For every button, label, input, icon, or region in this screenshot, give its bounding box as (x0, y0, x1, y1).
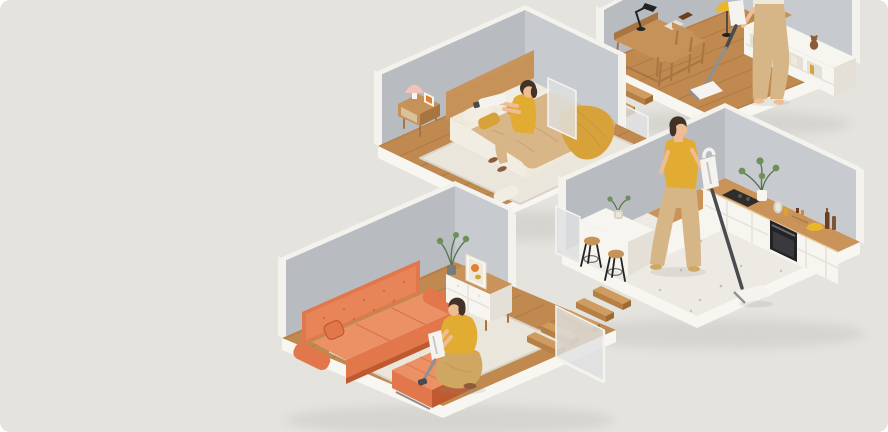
ceramic-vase (774, 202, 781, 213)
bedroom-woman-hair-side (531, 86, 537, 98)
vacuum-body (728, 0, 746, 26)
kitchen-wall-end-cap (856, 166, 864, 244)
frosted-glass-panel (556, 206, 580, 264)
living-woman-shoe (464, 383, 477, 389)
living-wall-end-cap (508, 210, 516, 290)
kitchen-woman-shoe (650, 264, 662, 270)
kitchen-woman-top (664, 138, 698, 190)
bedroom-woman-top (510, 94, 536, 134)
scene-canvas (0, 0, 888, 432)
bedroom-wall-end-cap (618, 50, 626, 129)
living-woman-face (448, 304, 460, 316)
kitchen-woman-hair-side (670, 124, 677, 137)
isometric-home-illustration (0, 0, 888, 432)
stool-seat (608, 250, 624, 259)
plant-vase (757, 190, 767, 201)
living-woman-hair-side (458, 302, 465, 315)
stool-seat (584, 237, 600, 246)
kitchen-woman-face (675, 124, 687, 136)
study-wall-end-cap (852, 0, 860, 64)
plant-pot (447, 265, 456, 275)
study-woman-foot (774, 99, 785, 104)
bedroom-wall-start-cap (374, 70, 382, 148)
study-woman-foot (754, 98, 765, 103)
ceramic-vase (783, 208, 788, 216)
living-wall-start-cap (278, 256, 286, 340)
teddy-bear (810, 35, 818, 50)
kitchen-woman-shoe (688, 266, 700, 272)
